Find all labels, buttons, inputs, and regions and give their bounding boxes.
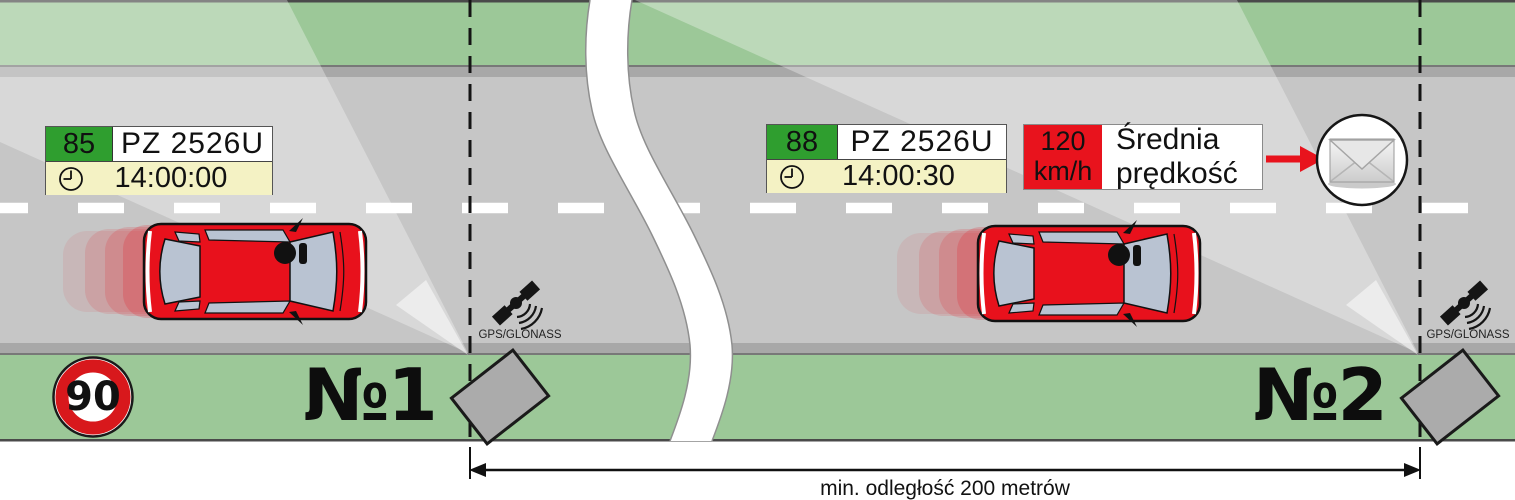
checkpoint2-label: №2 (1253, 359, 1386, 431)
measured-speed-1: 85 (46, 127, 113, 161)
timestamp-2: 14:00:30 (805, 160, 1006, 193)
checkpoint1-label: №1 (303, 359, 436, 431)
checkpoint2-measurement-box: 88 PZ 2526U 14:00:30 (766, 124, 1007, 193)
envelope-icon (1317, 115, 1407, 205)
license-plate-2: PZ 2526U (838, 125, 1006, 159)
average-speed-result: 120 km/h Średnia prędkość (1023, 124, 1263, 190)
checkpoint1-measurement-box: 85 PZ 2526U 14:00:00 (45, 126, 273, 195)
average-speed-value: 120 (1040, 127, 1085, 157)
distance-arrow (469, 447, 1421, 479)
car-at-checkpoint-2 (897, 220, 1200, 327)
average-speed-unit: km/h (1034, 157, 1093, 187)
average-speed-camera-diagram: 85 PZ 2526U 14:00:00 88 PZ 2526U 14:00:3… (0, 0, 1515, 500)
speed-limit-value: 90 (53, 357, 133, 437)
license-plate-1: PZ 2526U (113, 127, 272, 161)
gps-glonass-label-1: GPS/GLONASS (455, 329, 585, 341)
average-speed-value-box: 120 km/h (1024, 125, 1102, 189)
average-speed-label: Średnia prędkość (1102, 125, 1262, 189)
gps-glonass-label-2: GPS/GLONASS (1403, 329, 1515, 341)
clock-icon (58, 166, 84, 192)
car-at-checkpoint-1 (63, 218, 366, 325)
bottom-edge-line (0, 439, 1515, 442)
distance-label: min. odległość 200 metrów (685, 477, 1205, 500)
timestamp-1: 14:00:00 (84, 162, 272, 195)
clock-icon (779, 164, 805, 190)
measured-speed-2: 88 (767, 125, 838, 159)
